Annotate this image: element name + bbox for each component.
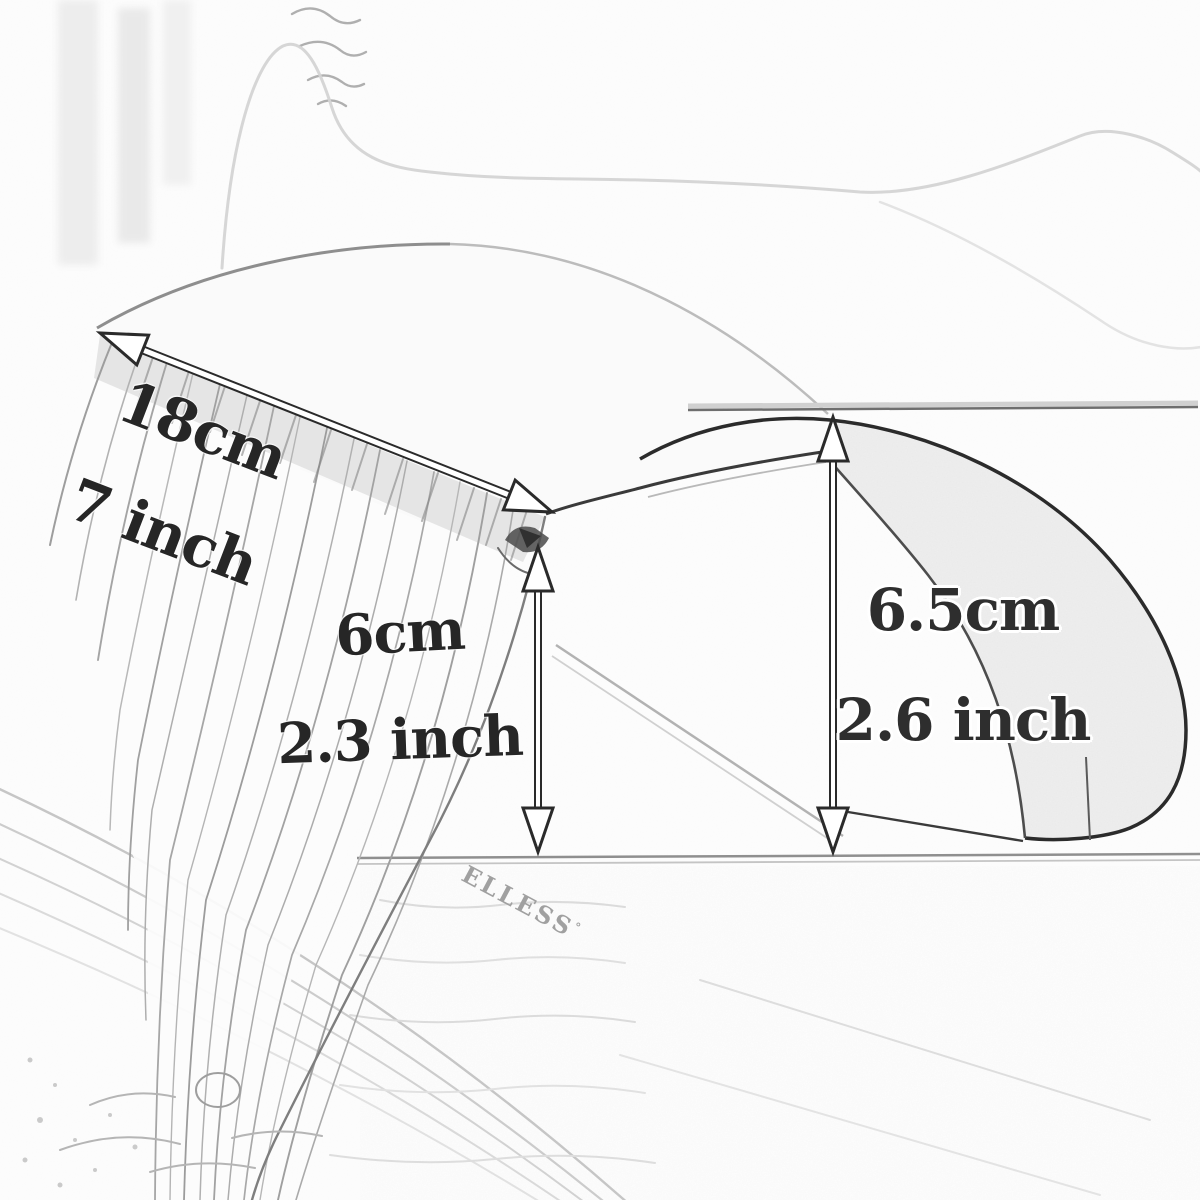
label-lip-metric: 6cm — [334, 597, 467, 670]
product-dimension-diagram: 18cm 7 inch 6cm 2.3 inch 6.5cm 2.6 inch … — [0, 0, 1200, 1200]
label-arch-metric: 6.5cm — [867, 576, 1060, 644]
label-lip-imperial: 2.3 inch — [276, 703, 524, 778]
label-arch-imperial: 2.6 inch — [836, 686, 1091, 754]
pool-ripples — [330, 866, 1200, 1200]
